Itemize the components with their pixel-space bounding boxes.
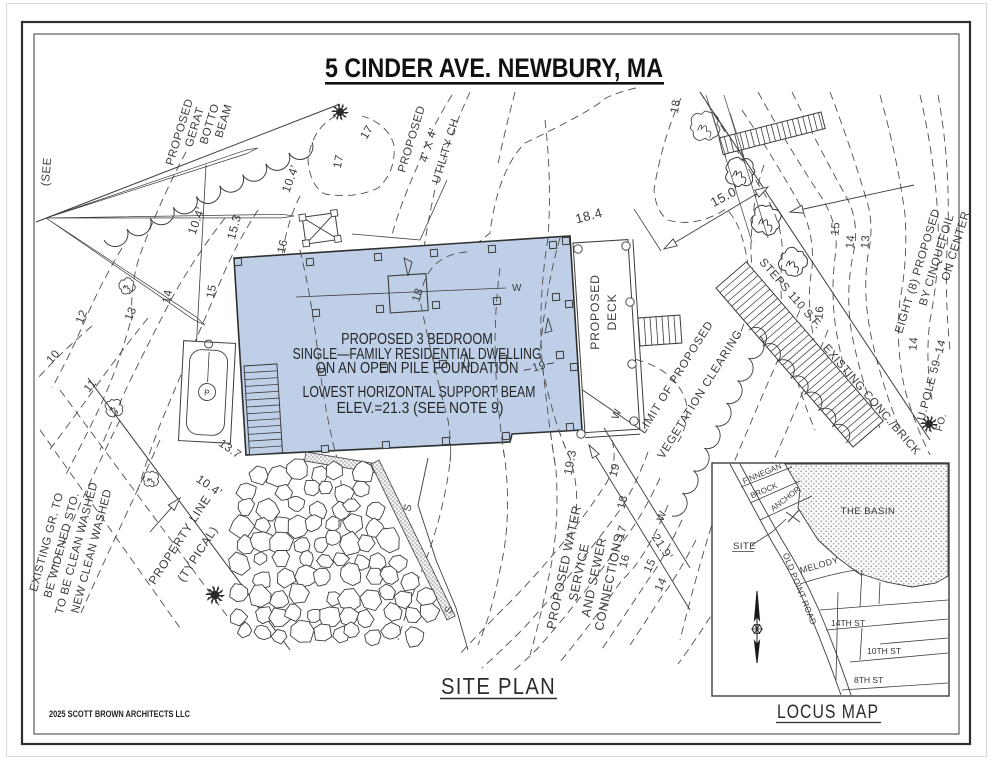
svg-text:14: 14 (907, 336, 920, 351)
svg-text:W: W (512, 283, 522, 294)
svg-text:18.4: 18.4 (574, 205, 604, 227)
svg-text:18: 18 (669, 99, 683, 115)
svg-text:11: 11 (82, 377, 100, 395)
svg-text:14: 14 (844, 234, 857, 249)
svg-text:10.4’: 10.4’ (279, 163, 302, 195)
svg-text:10: 10 (45, 348, 63, 366)
svg-text:UTILITY CH: UTILITY CH (431, 117, 462, 185)
svg-text:17: 17 (332, 154, 346, 170)
svg-text:10.4’: 10.4’ (185, 205, 208, 237)
svg-text:SITE: SITE (733, 541, 756, 552)
svg-text:ELEV.=21.3 (SEE NOTE 9): ELEV.=21.3 (SEE NOTE 9) (337, 400, 504, 417)
svg-text:14TH ST: 14TH ST (831, 618, 865, 628)
svg-text:14: 14 (653, 576, 670, 594)
svg-text:LOCUS MAP: LOCUS MAP (777, 702, 879, 723)
svg-text:16: 16 (276, 238, 291, 254)
svg-text:15.3: 15.3 (224, 213, 244, 241)
svg-text:13: 13 (123, 305, 139, 322)
svg-text:PROPOSED: PROPOSED (396, 104, 428, 174)
svg-text:14: 14 (161, 289, 175, 305)
svg-text:THE BASIN: THE BASIN (841, 506, 896, 517)
svg-text:5 CINDER AVE. NEWBURY, MA: 5 CINDER AVE. NEWBURY, MA (325, 53, 663, 83)
svg-text:DECK: DECK (605, 293, 619, 330)
svg-text:21.9’: 21.9’ (649, 531, 676, 563)
svg-text:PROPOSED: PROPOSED (588, 274, 602, 349)
svg-text:U.POLE 59–14: U.POLE 59–14 (916, 338, 949, 422)
svg-text:ON AN OPEN PILE FOUNDATION: ON AN OPEN PILE FOUNDATION (316, 360, 519, 377)
svg-text:16: 16 (813, 305, 826, 320)
svg-text:SITE PLAN: SITE PLAN (441, 673, 556, 699)
svg-text:10TH ST: 10TH ST (867, 646, 901, 656)
svg-text:13: 13 (859, 234, 872, 249)
svg-text:2025 SCOTT BROWN ARCHITECTS LL: 2025 SCOTT BROWN ARCHITECTS LLC (49, 709, 190, 719)
svg-text:13.7: 13.7 (216, 438, 243, 462)
svg-text:17: 17 (615, 524, 630, 540)
svg-text:10.4’: 10.4’ (194, 472, 225, 500)
svg-text:P: P (204, 387, 211, 397)
svg-text:16: 16 (618, 553, 633, 569)
svg-text:15: 15 (642, 557, 659, 575)
svg-text:19: 19 (608, 462, 623, 478)
svg-text:17: 17 (359, 124, 376, 142)
svg-text:18: 18 (616, 494, 631, 510)
svg-text:W: W (655, 510, 670, 524)
svg-text:FO.: FO. (934, 412, 949, 432)
svg-text:15: 15 (829, 221, 842, 236)
svg-text:15: 15 (205, 284, 219, 300)
svg-text:(SEE: (SEE (40, 157, 54, 187)
svg-text:12: 12 (74, 308, 90, 325)
svg-text:LOWEST HORIZONTAL SUPPORT BEAM: LOWEST HORIZONTAL SUPPORT BEAM (303, 383, 536, 401)
svg-text:8TH ST: 8TH ST (854, 675, 883, 685)
svg-text:19.3: 19.3 (561, 449, 579, 476)
